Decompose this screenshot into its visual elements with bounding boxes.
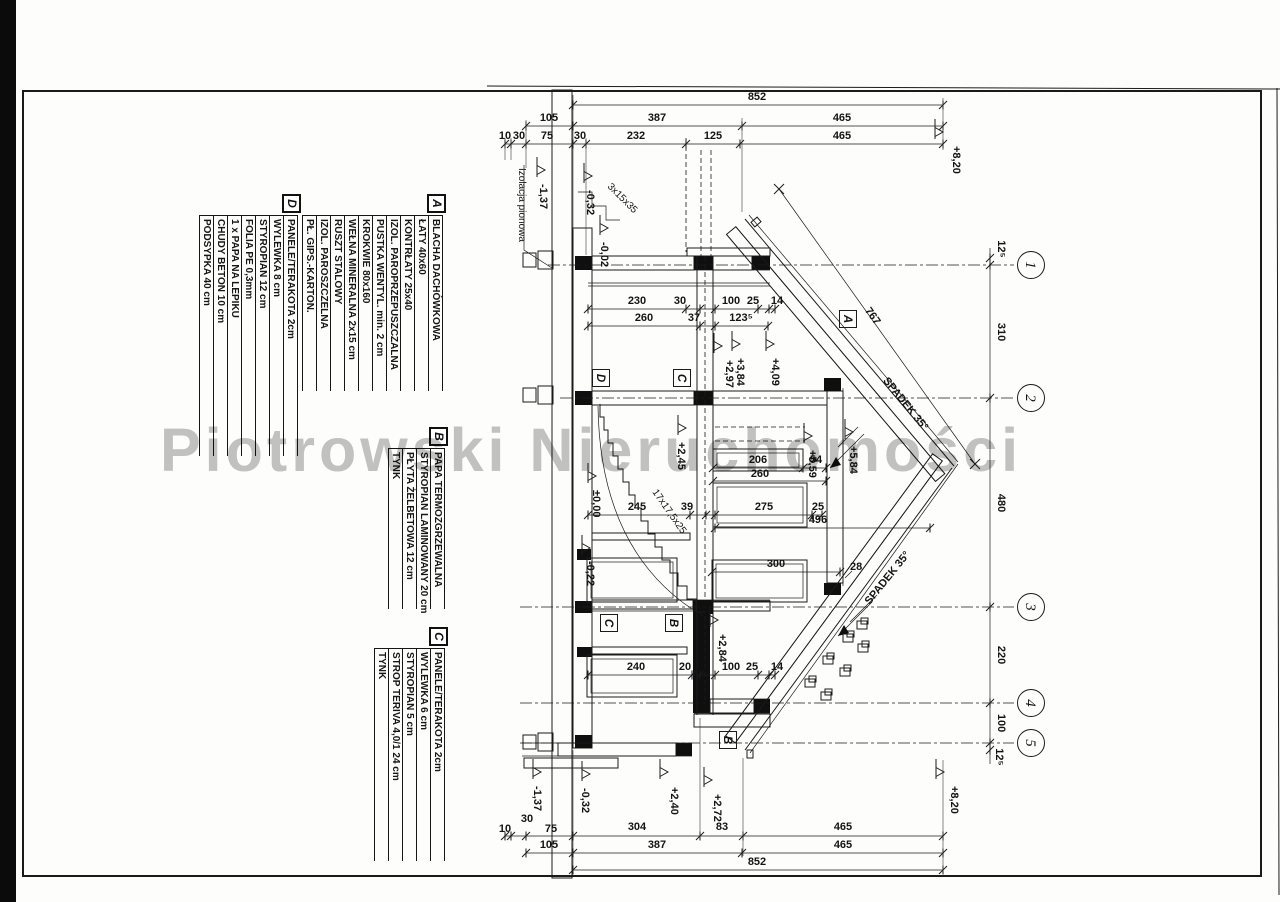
svg-text:A: A	[841, 314, 853, 323]
dim-label: 30	[574, 130, 586, 142]
dim-label: 75	[541, 130, 553, 142]
legend-table-c: C PANELE/TERAKOTA 2cm WYLEWKA 6 cm STYRO…	[374, 648, 445, 861]
dim-label: 12⁵	[995, 240, 1007, 257]
level-label: +3,84	[734, 358, 746, 387]
dim-label: 30	[521, 813, 533, 825]
svg-text:4: 4	[1022, 699, 1038, 707]
dim-label: 37	[688, 312, 700, 324]
dim-label: 123⁵	[729, 312, 753, 324]
svg-text:B: B	[667, 619, 679, 627]
izolacja-note: Izolacja pionowa	[516, 168, 527, 242]
dim-label: 465	[834, 821, 852, 833]
steps-note: 3x15x35	[605, 181, 640, 216]
level-label: -0,32	[584, 190, 596, 215]
dim-label: 125	[704, 130, 722, 142]
level-label: -1,37	[537, 184, 549, 209]
svg-text:C: C	[602, 619, 614, 628]
svg-text:B: B	[721, 736, 733, 744]
legend-item: IZOL. PAROSZCZELNA	[316, 216, 330, 391]
level-label: +2,40	[668, 787, 680, 815]
dim-label: 25	[747, 295, 759, 307]
level-label: +2,72	[711, 794, 723, 822]
ground-slab	[573, 228, 592, 748]
svg-text:3: 3	[1022, 602, 1038, 611]
dim-label: 387	[648, 839, 666, 851]
dim-label: 100	[995, 714, 1007, 732]
legend-table-a: A BLACHA DACHÓWKOWA ŁATY 40x60 KONTRŁATY…	[302, 215, 443, 391]
dim-label: 30	[674, 295, 686, 307]
dim-label: 230	[628, 295, 646, 307]
svg-text:1: 1	[1022, 261, 1038, 269]
legend-item: PUSTKA WENTYL. min. 2 cm	[372, 216, 386, 391]
dim-label: 105	[540, 112, 558, 124]
level-label: -0,32	[579, 788, 591, 813]
level-label: ±0,00	[590, 490, 602, 517]
legend-item: KROKWIE 80x160	[358, 216, 372, 391]
level-label: +2,97	[723, 360, 735, 388]
dim-label: 275	[755, 501, 773, 513]
dim-label: 245	[628, 501, 646, 513]
dim-label: 100	[722, 661, 740, 673]
roof-length-label: 767	[862, 305, 882, 327]
dim-label: 83	[716, 821, 728, 833]
svg-text:D: D	[594, 374, 606, 382]
level-label: +8,20	[948, 786, 960, 814]
legend-c-header: C	[429, 627, 448, 646]
legend-d-header: D	[282, 194, 301, 213]
svg-text:C: C	[675, 374, 687, 383]
dim-label: 232	[627, 130, 645, 142]
legend-item: STROP TERIVA 4,0/1 24 cm	[388, 649, 402, 861]
dim-label: 25	[746, 661, 758, 673]
dim-label: 12⁵	[993, 748, 1005, 765]
level-label: +2,84	[716, 634, 728, 663]
roof-slope-lower-label: SPADEK 35°	[863, 549, 913, 607]
legend-a-header: A	[427, 194, 446, 213]
dim-label: 260	[635, 312, 653, 324]
dim-label: 75	[545, 823, 557, 835]
dim-label: 20	[679, 661, 691, 673]
dim-label: 25	[812, 501, 824, 513]
dim-label: 387	[648, 112, 666, 124]
svg-text:2: 2	[1022, 394, 1038, 402]
legend-item: BLACHA DACHÓWKOWA	[428, 216, 442, 391]
legend-item: WEŁNA MINERALNA 2x15 cm	[344, 216, 358, 391]
dim-label: 220	[995, 646, 1007, 664]
axis-bubble-3: 3	[1018, 594, 1045, 621]
level-label: -0,22	[584, 561, 596, 586]
legend-item: STYROPIAN 5 cm	[402, 649, 416, 861]
legend-item: RUSZT STALOWY	[330, 216, 344, 391]
dim-label: 465	[833, 112, 851, 124]
axis-bubble-5: 5	[1018, 730, 1045, 757]
dim-label: 30	[513, 130, 525, 142]
level-label: +8,20	[950, 146, 962, 174]
dim-label: 852	[748, 856, 766, 868]
legend-item: ŁATY 40x60	[414, 216, 428, 391]
dim-label: 39	[681, 501, 693, 513]
legend-item: PANELE/TERAKOTA 2cm	[430, 649, 444, 861]
dim-label: 496	[809, 514, 827, 526]
svg-text:5: 5	[1022, 739, 1038, 747]
dim-label: 14	[771, 295, 784, 307]
top-dimensions: 852 105 387 465 10 30 75 30 232 125 465	[499, 91, 947, 255]
dim-label: 310	[995, 323, 1007, 341]
dim-label: 100	[722, 295, 740, 307]
dim-label: 300	[767, 558, 785, 570]
level-label: -1,37	[531, 786, 543, 811]
axis-bubble-2: 2	[1018, 385, 1045, 412]
legend-item: WYLEWKA 6 cm	[416, 649, 430, 861]
dim-label: 465	[833, 130, 851, 142]
legend-item: TYNK	[374, 649, 388, 861]
dim-label: 480	[995, 494, 1007, 512]
legend-item: IZOL. PAROPRZEPUSZCZALNA	[386, 216, 400, 391]
dim-label: 10	[499, 823, 511, 835]
scanned-blueprint-page: { "watermark": {"text": "Piotrowski Nier…	[0, 0, 1280, 902]
wall-ties	[523, 251, 553, 751]
dim-label: 105	[540, 839, 558, 851]
watermark-text: Piotrowski Nieruchomości	[160, 415, 1160, 485]
legend-item: KONTRŁATY 25x40	[400, 216, 414, 391]
axis-spacing-dims: 12⁵ 310 480 220 100 12⁵	[986, 240, 1007, 765]
legend-item: PŁ. GIPS.-KARTON.	[302, 216, 316, 391]
dim-label: 304	[628, 821, 647, 833]
dim-label: 14	[771, 661, 784, 673]
collar-ceiling	[824, 378, 843, 595]
level-label: +4,09	[769, 358, 781, 386]
level-label: -0,02	[598, 242, 610, 267]
dim-label: 240	[627, 661, 645, 673]
dim-label: 852	[748, 91, 766, 103]
axis-bubble-4: 4	[1018, 690, 1045, 717]
axis-bubble-1: 1	[1018, 252, 1045, 279]
dim-label: 465	[834, 839, 852, 851]
